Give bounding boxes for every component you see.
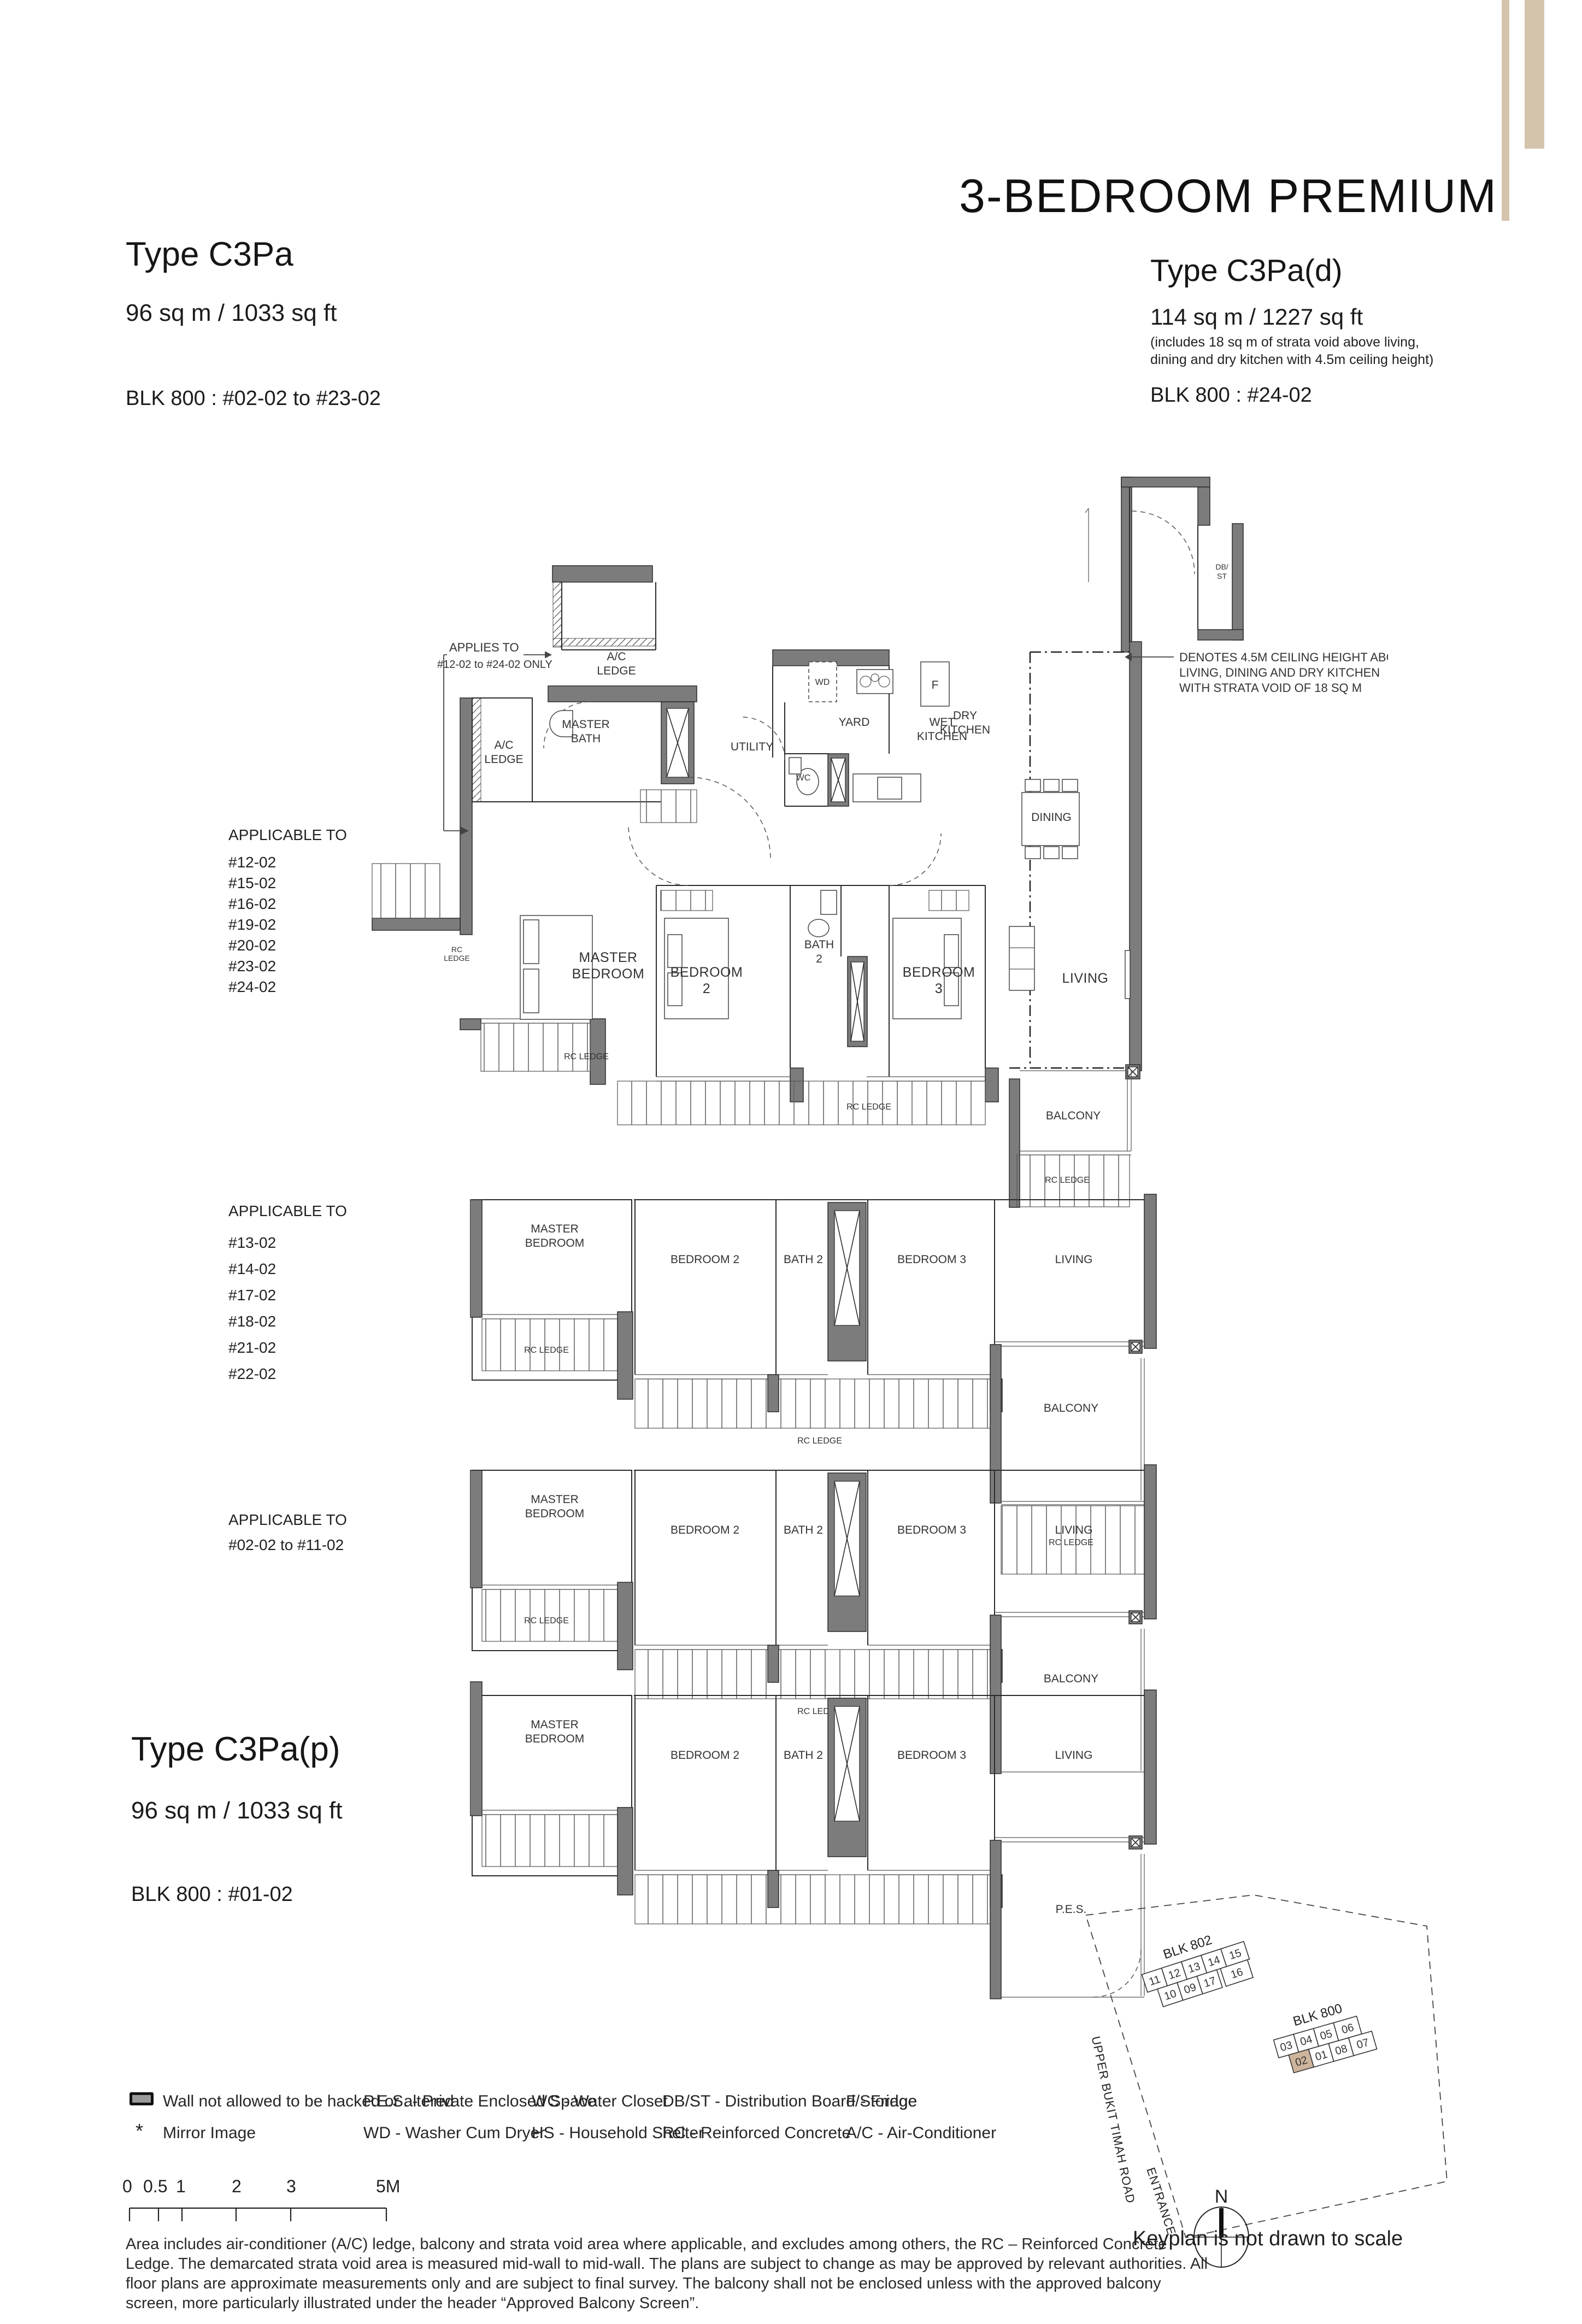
s3-bath2: BATH 2 <box>784 1524 823 1536</box>
rc-ledge-bedrooms-label: RC LEDGE <box>846 1102 891 1112</box>
bath2-line1: BATH <box>804 938 834 951</box>
scale-1: 1 <box>176 2176 186 2197</box>
applicable-list-3: APPLICABLE TO #02-02 to #11-02 <box>228 1511 347 1554</box>
type-c3pap-block: BLK 800 : #01-02 <box>131 1883 293 1906</box>
page-title: 3-BEDROOM PREMIUM <box>959 169 1497 224</box>
type-c3pad-note2: dining and dry kitchen with 4.5m ceiling… <box>1150 351 1433 368</box>
applicable2-unit: #17-02 <box>228 1287 347 1304</box>
s4-master-line1: MASTER <box>531 1718 579 1731</box>
s2-rc-ledge-bedrooms: RC LEDGE <box>797 1436 842 1446</box>
accent-bar-thin <box>1502 0 1509 221</box>
legend-ac: A/C - Air-Conditioner <box>846 2124 996 2143</box>
yard-label: YARD <box>839 716 870 729</box>
applicable3-title: APPLICABLE TO <box>228 1511 347 1529</box>
type-c3pap-name: Type C3Pa(p) <box>131 1730 340 1769</box>
legend-mirror-text: Mirror Image <box>163 2124 256 2143</box>
scale-2: 2 <box>232 2176 242 2197</box>
type-c3pap-area: 96 sq m / 1033 sq ft <box>131 1797 342 1824</box>
scale-0: 0 <box>122 2176 132 2197</box>
legend-wd: WD - Washer Cum Dryer <box>363 2124 545 2143</box>
s4-living: LIVING <box>1055 1749 1093 1762</box>
s3-rc-ledge-master: RC LEDGE <box>524 1616 569 1625</box>
entrance-label: ENTRANCE <box>1144 2165 1179 2237</box>
keyplan-note: Keyplan is not drawn to scale <box>1133 2227 1403 2250</box>
s3-bedroom2: BEDROOM 2 <box>671 1524 739 1536</box>
applies-note-line1: APPLIES TO <box>449 641 519 654</box>
master-bedroom-line1: MASTER <box>579 950 637 965</box>
household-shelter-icons <box>661 702 1140 1079</box>
strata-void-lines <box>1009 652 1130 1068</box>
applicable2-unit: #14-02 <box>228 1260 347 1278</box>
s2-living: LIVING <box>1055 1253 1093 1266</box>
rc-ledge-vert-line2: LEDGE <box>444 954 469 963</box>
master-bath-line2: BATH <box>571 732 601 745</box>
balcony-label: BALCONY <box>1046 1110 1101 1122</box>
applies-note-line2: #12-02 to #24-02 ONLY <box>437 659 552 671</box>
applicable-list-1: APPLICABLE TO #12-02 #15-02 #16-02 #19-0… <box>228 826 347 996</box>
type-c3pad-note1: (includes 18 sq m of strata void above l… <box>1150 333 1419 351</box>
bedroom3-line1: BEDROOM <box>903 965 975 980</box>
applicable-list-2: APPLICABLE TO #13-02 #14-02 #17-02 #18-0… <box>228 1202 347 1383</box>
s2-bedroom3: BEDROOM 3 <box>897 1253 966 1266</box>
keyplan-site-boundary <box>1086 1895 1447 2238</box>
dining-label: DINING <box>1031 811 1072 824</box>
legend-f: F - Fridge <box>846 2092 917 2111</box>
s3-master-line1: MASTER <box>531 1493 579 1506</box>
s3-master-line2: BEDROOM <box>525 1507 585 1520</box>
disclaimer-line3: floor plans are approximate measurements… <box>126 2274 1161 2293</box>
applicable2-unit: #13-02 <box>228 1234 347 1252</box>
s3-living: LIVING <box>1055 1524 1093 1536</box>
rc-ledge-vert-line1: RC <box>451 945 462 954</box>
legend-wall-icon <box>130 2092 154 2105</box>
type-c3pa-block: BLK 800 : #02-02 to #23-02 <box>126 387 381 410</box>
applicable2-unit: #21-02 <box>228 1339 347 1357</box>
s2-bath2: BATH 2 <box>784 1253 823 1266</box>
fridge-label: F <box>932 679 939 691</box>
accent-bar-wide <box>1525 0 1544 149</box>
dbst-line2: ST <box>1217 572 1227 580</box>
legend-rc: RC - Reinforced Concrete <box>662 2124 851 2143</box>
applicable2-unit: #22-02 <box>228 1365 347 1383</box>
s2-balcony: BALCONY <box>1044 1402 1098 1415</box>
north-label: N <box>1215 2186 1228 2207</box>
s4-bedroom3: BEDROOM 3 <box>897 1749 966 1762</box>
applicable3-range: #02-02 to #11-02 <box>228 1536 347 1554</box>
type-c3pad-name: Type C3Pa(d) <box>1150 253 1343 289</box>
scale-05: 0.5 <box>143 2176 167 2197</box>
s2-rc-ledge-master: RC LEDGE <box>524 1346 569 1355</box>
s2-bedroom2: BEDROOM 2 <box>671 1253 739 1266</box>
s3-bedroom3: BEDROOM 3 <box>897 1524 966 1536</box>
applicable1-unit: #20-02 <box>228 937 347 954</box>
ceiling-note-line1: DENOTES 4.5M CEILING HEIGHT ABOVE <box>1179 650 1388 664</box>
utility-label: UTILITY <box>731 741 773 753</box>
applicable2-title: APPLICABLE TO <box>228 1202 347 1220</box>
s4-master-line2: BEDROOM <box>525 1733 585 1745</box>
ac-ledge-top-line1: A/C <box>607 650 626 663</box>
living-label: LIVING <box>1062 971 1109 986</box>
applicable1-unit: #19-02 <box>228 916 347 934</box>
ceiling-note-line3: WITH STRATA VOID OF 18 SQ M <box>1179 681 1362 695</box>
type-c3pa-name: Type C3Pa <box>126 235 293 274</box>
bath2-line2: 2 <box>816 953 822 965</box>
wc-label: WC <box>796 773 811 783</box>
master-bath-line1: MASTER <box>562 718 610 731</box>
bedroom3-line2: 3 <box>935 981 943 996</box>
type-c3pad-area: 114 sq m / 1227 sq ft <box>1150 304 1363 330</box>
ac-ledge-left-line2: LEDGE <box>484 753 523 766</box>
scale-3: 3 <box>286 2176 296 2197</box>
bedroom2-line2: 2 <box>703 981 710 996</box>
mirror-image-icon: * <box>136 2120 143 2143</box>
ac-ledge-left-line1: A/C <box>494 739 513 752</box>
keyplan-blk802: BLK 802 11 12 13 14 15 10 09 17 16 <box>1136 1923 1255 2010</box>
keyplan-blk800: BLK 800 03 04 05 06 02 01 08 07 <box>1268 1995 1377 2076</box>
applicable1-unit: #16-02 <box>228 895 347 913</box>
type-c3pa-area: 96 sq m / 1033 sq ft <box>126 300 337 327</box>
ac-ledge-top-line2: LEDGE <box>597 665 636 677</box>
applicable2-unit: #18-02 <box>228 1313 347 1330</box>
applicable1-unit: #12-02 <box>228 854 347 871</box>
applicable1-unit: #23-02 <box>228 958 347 975</box>
dbst-line1: DB/ <box>1215 562 1228 571</box>
applicable1-unit: #24-02 <box>228 978 347 996</box>
disclaimer-line2: Ledge. The demarcated strata void area i… <box>126 2254 1208 2274</box>
ceiling-note-line2: LIVING, DINING AND DRY KITCHEN <box>1179 666 1380 679</box>
applicable1-unit: #15-02 <box>228 875 347 892</box>
scale-5m: 5M <box>376 2176 400 2197</box>
disclaimer-line1: Area includes air-conditioner (A/C) ledg… <box>126 2234 1167 2254</box>
disclaimer-line4: screen, more particularly illustrated un… <box>126 2293 699 2313</box>
dry-kitchen-line2: KITCHEN <box>940 724 990 736</box>
s2-master-line1: MASTER <box>531 1223 579 1235</box>
s4-bedroom2: BEDROOM 2 <box>671 1749 739 1762</box>
master-bedroom-line2: BEDROOM <box>572 966 645 982</box>
north-compass-icon: N <box>1194 2186 1249 2267</box>
bedroom2-line1: BEDROOM <box>671 965 743 980</box>
keyplan: BLK 802 11 12 13 14 15 10 09 17 16 BLK 8… <box>1066 1875 1557 2279</box>
rc-ledge-master-label: RC LEDGE <box>564 1052 609 1061</box>
dry-kitchen-line1: DRY <box>953 709 977 722</box>
applicable1-title: APPLICABLE TO <box>228 826 347 844</box>
type-c3pad-block: BLK 800 : #24-02 <box>1150 384 1312 407</box>
legend-wc: WC - Water Closet <box>532 2092 668 2111</box>
s4-bath2: BATH 2 <box>784 1749 823 1762</box>
scale-bar <box>126 2204 415 2226</box>
main-floor-plan: APPLIES TO #12-02 to #24-02 ONLY A/C LED… <box>306 454 1388 1290</box>
wd-label: WD <box>815 678 830 687</box>
s2-master-line2: BEDROOM <box>525 1237 585 1249</box>
